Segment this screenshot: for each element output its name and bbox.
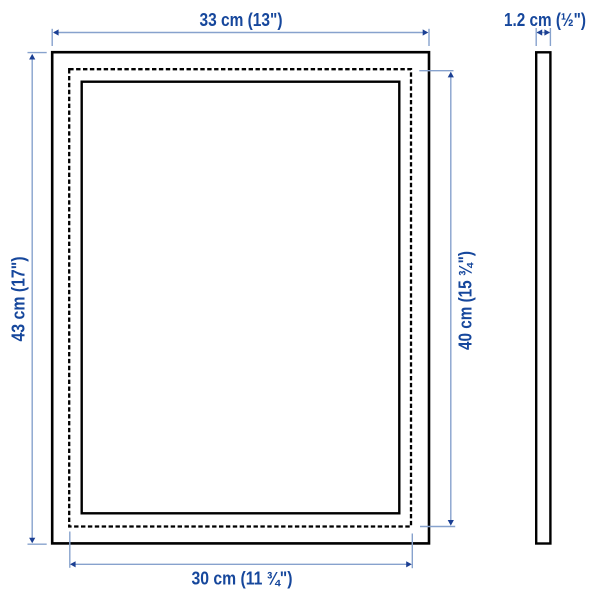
svg-text:1.2 cm (½"): 1.2 cm (½") [504, 10, 586, 30]
svg-text:40 cm (15 ¾"): 40 cm (15 ¾") [456, 251, 476, 350]
svg-text:30 cm (11 ¾"): 30 cm (11 ¾") [192, 569, 293, 589]
svg-text:43 cm (17"): 43 cm (17") [9, 257, 29, 342]
svg-text:33 cm (13"): 33 cm (13") [200, 10, 283, 30]
